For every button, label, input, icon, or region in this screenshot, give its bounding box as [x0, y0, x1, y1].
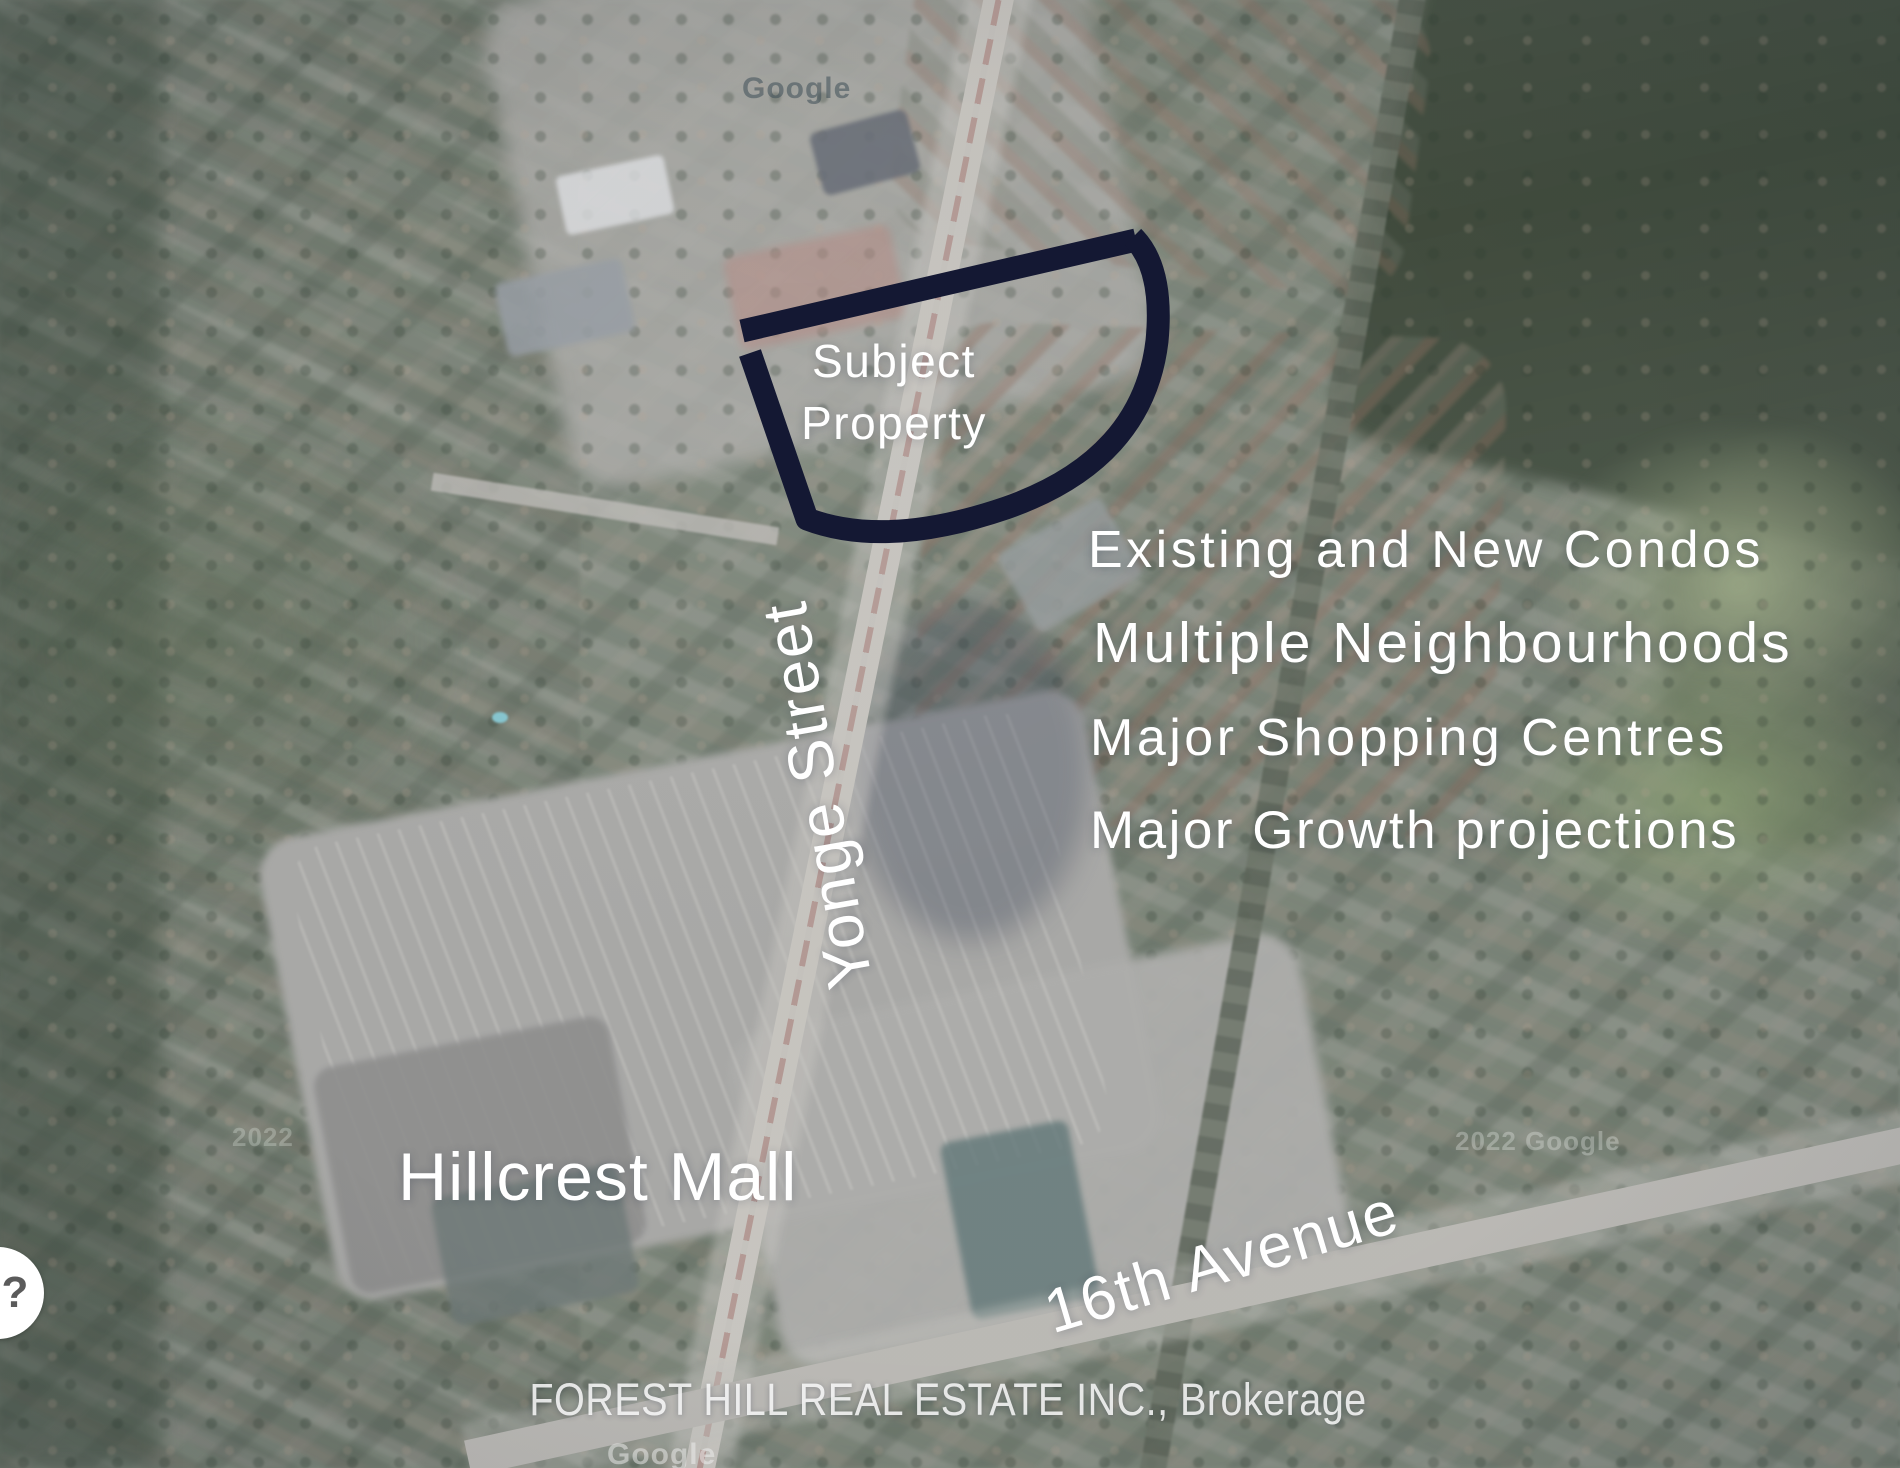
hillcrest-mall-label: Hillcrest Mall	[398, 1138, 797, 1216]
highlight-existing-new-condos: Existing and New Condos	[1088, 520, 1764, 580]
real-estate-map-ad: Google 2022 Google 2022 Google Subject P…	[0, 0, 1900, 1468]
subject-property-line2: Property	[801, 392, 987, 454]
question-mark-icon: ?	[0, 1268, 28, 1318]
subject-property-line1: Subject	[801, 330, 987, 392]
highlight-major-shopping-centres: Major Shopping Centres	[1090, 708, 1728, 768]
brokerage-attribution: FOREST HILL REAL ESTATE INC., Brokerage	[529, 1374, 1366, 1426]
highlight-multiple-neighbourhoods: Multiple Neighbourhoods	[1093, 610, 1793, 676]
subject-property-label: Subject Property	[801, 330, 987, 454]
highlight-major-growth-projections: Major Growth projections	[1090, 800, 1739, 861]
outline-top-edge	[742, 240, 1136, 331]
